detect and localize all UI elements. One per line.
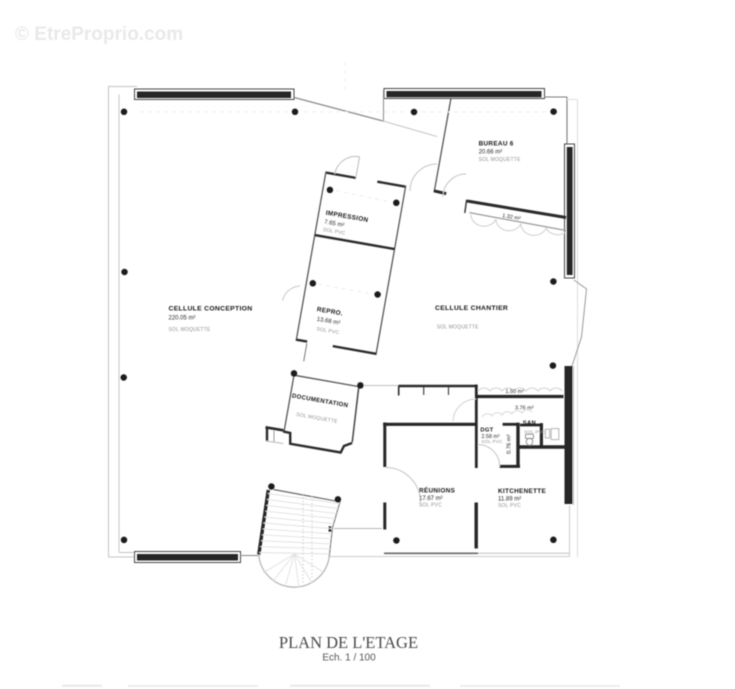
svg-text:SAN: SAN	[523, 420, 536, 426]
svg-text:SOL PVC: SOL PVC	[524, 430, 546, 435]
svg-text:SOL PVC: SOL PVC	[498, 503, 521, 509]
svg-text:PLAN DE L'ETAGE: PLAN DE L'ETAGE	[279, 633, 418, 652]
svg-text:RÉUNIONS: RÉUNIONS	[419, 486, 456, 495]
svg-text:SOL MOQUETTE: SOL MOQUETTE	[437, 325, 479, 331]
svg-text:11.89 m²: 11.89 m²	[498, 496, 521, 502]
svg-text:0.76 m²: 0.76 m²	[507, 434, 513, 454]
svg-text:BUREAU 6: BUREAU 6	[479, 141, 514, 148]
svg-text:KITCHENETTE: KITCHENETTE	[498, 488, 546, 495]
svg-text:© EtreProprio.com: © EtreProprio.com	[15, 24, 183, 45]
svg-text:DGT: DGT	[480, 428, 493, 434]
svg-text:Ech. 1 / 100: Ech. 1 / 100	[322, 653, 376, 664]
svg-text:17.67 m²: 17.67 m²	[419, 496, 443, 502]
svg-text:CELLULE CHANTIER: CELLULE CHANTIER	[435, 305, 508, 312]
svg-text:1.50 m²: 1.50 m²	[505, 389, 524, 395]
svg-text:220.05 m²: 220.05 m²	[169, 316, 196, 322]
svg-text:CELLULE CONCEPTION: CELLULE CONCEPTION	[169, 306, 253, 313]
svg-text:3.76 m²: 3.76 m²	[515, 405, 534, 411]
svg-text:SOL PVC: SOL PVC	[481, 439, 503, 444]
svg-text:SOL MOQUETTE: SOL MOQUETTE	[479, 157, 521, 163]
svg-text:SOL MOQUETTE: SOL MOQUETTE	[169, 327, 211, 333]
svg-text:20.66 m²: 20.66 m²	[479, 149, 503, 155]
svg-text:SOL PVC: SOL PVC	[419, 503, 442, 509]
